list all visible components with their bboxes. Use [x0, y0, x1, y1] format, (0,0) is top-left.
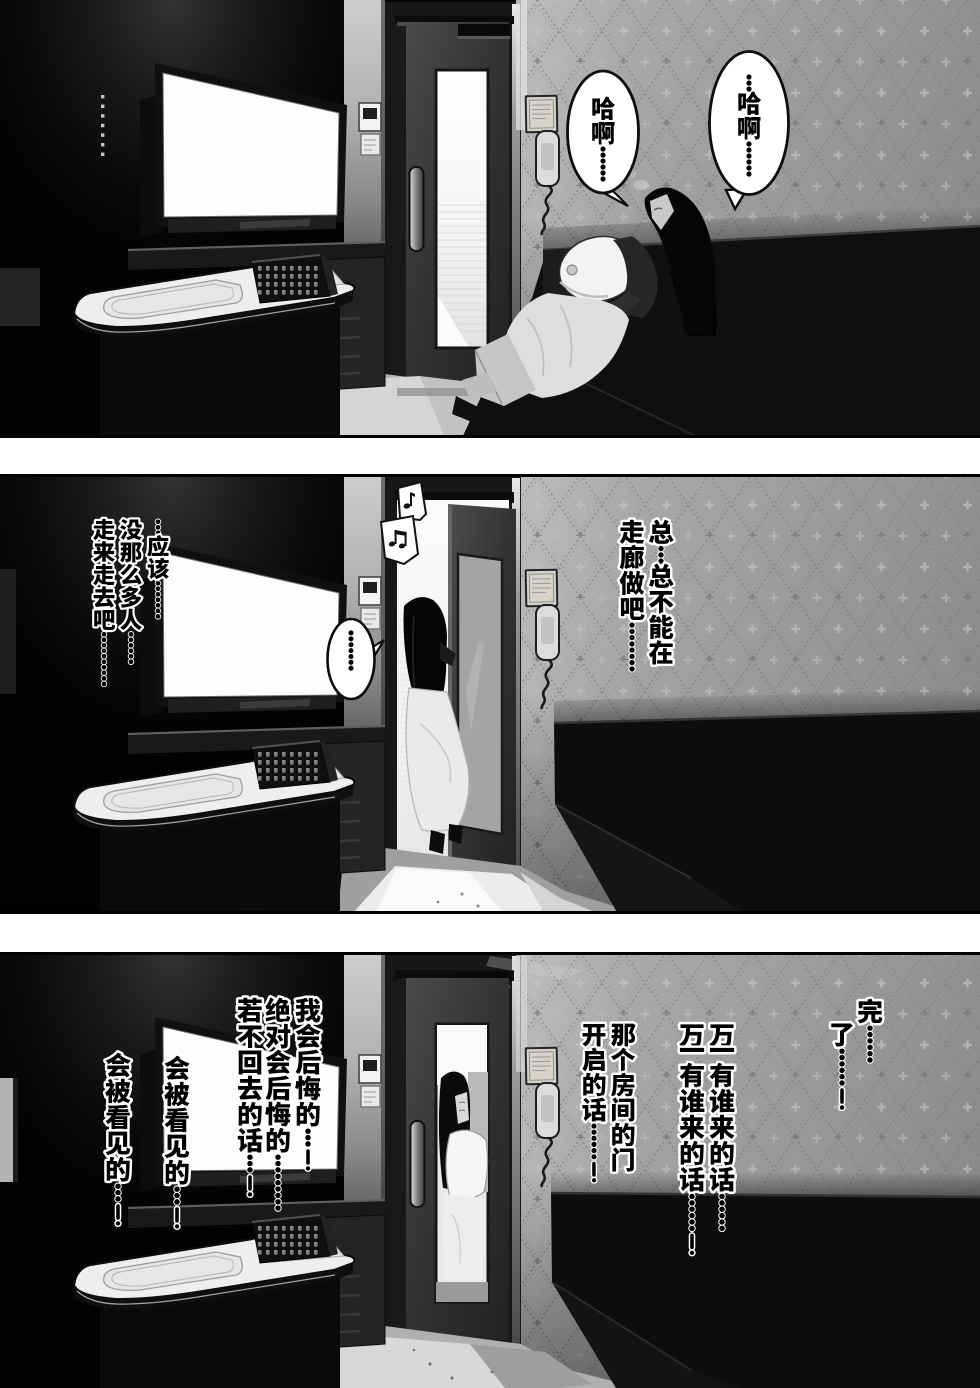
svg-text:的: 的	[164, 1153, 190, 1190]
svg-text:话: 话	[709, 1160, 735, 1197]
svg-text:人: 人	[120, 603, 143, 635]
svg-text:完: 完	[857, 992, 883, 1029]
svg-text:吧: 吧	[93, 603, 116, 635]
svg-text:总: 总	[648, 512, 674, 549]
svg-text:啊: 啊	[591, 115, 616, 150]
svg-text:话: 话	[679, 1160, 705, 1197]
svg-text:的: 的	[265, 1121, 291, 1158]
svg-text:该: 该	[147, 552, 170, 584]
svg-text:啊: 啊	[737, 110, 762, 145]
svg-text:了: 了	[829, 1015, 855, 1052]
svg-text:话: 话	[237, 1121, 263, 1158]
svg-text:门: 门	[610, 1141, 635, 1177]
svg-text:的: 的	[105, 1150, 131, 1187]
svg-text:的: 的	[295, 1095, 321, 1132]
svg-text:在: 在	[648, 633, 674, 670]
svg-text:吧: 吧	[619, 589, 645, 626]
svg-text:话: 话	[581, 1091, 606, 1127]
